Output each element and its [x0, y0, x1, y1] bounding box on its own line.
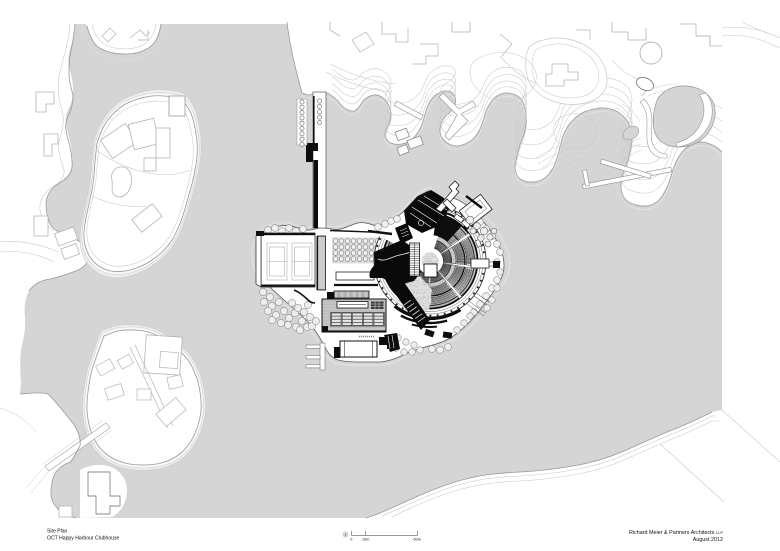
svg-text:Site Plan: Site Plan [47, 529, 68, 535]
svg-text:0: 0 [350, 538, 352, 542]
svg-text:August 2012: August 2012 [693, 537, 723, 543]
svg-text:OCT Happy Harbour Clubhouse: OCT Happy Harbour Clubhouse [47, 536, 120, 542]
svg-text:10m: 10m [362, 538, 369, 542]
svg-text:50m: 50m [414, 538, 421, 542]
svg-text:Richard Meier & Partners Archi: Richard Meier & Partners Architects LLP [629, 530, 723, 536]
